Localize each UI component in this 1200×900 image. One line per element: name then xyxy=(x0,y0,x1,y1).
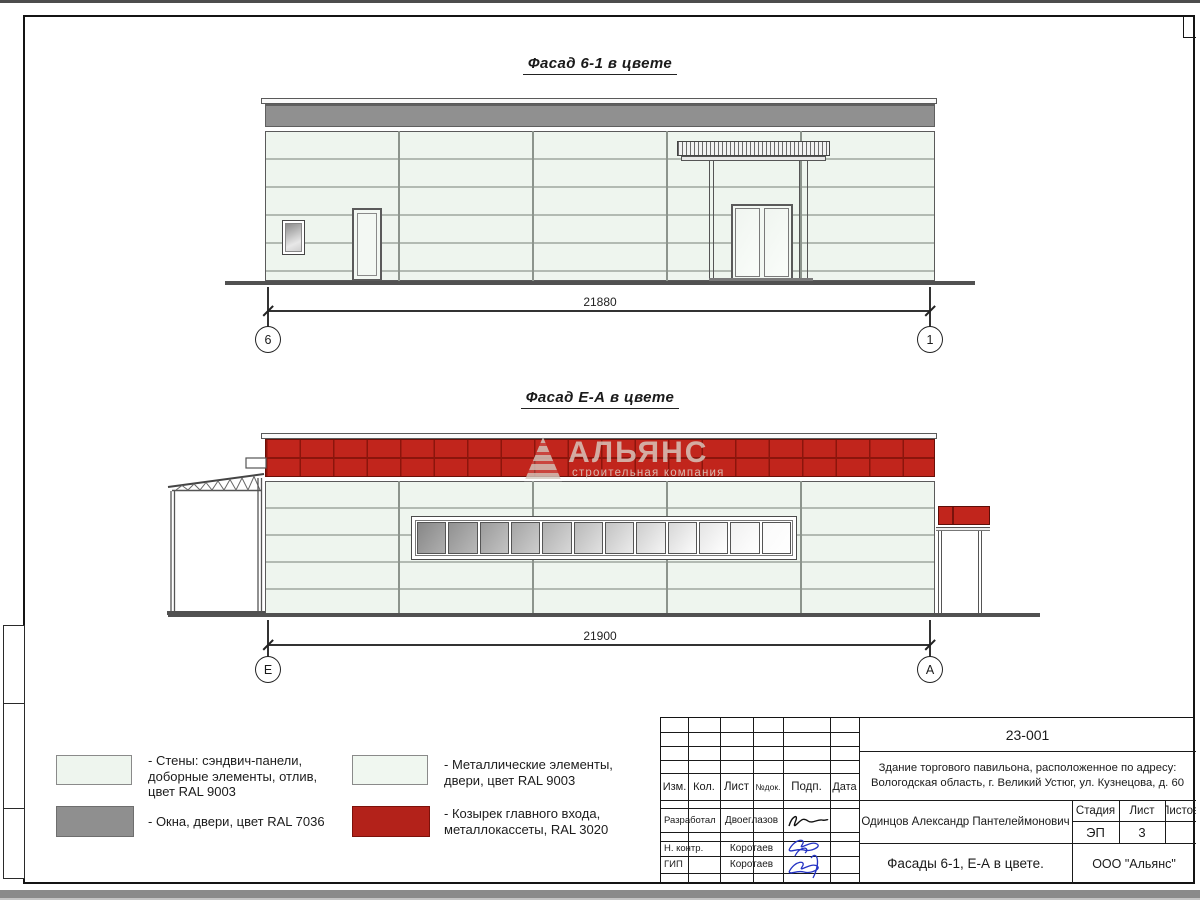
legend-swatch-wall xyxy=(56,755,132,785)
window-pane xyxy=(699,522,728,554)
stage-value: ЭП xyxy=(1072,821,1119,843)
dimension-line xyxy=(267,644,931,646)
side-canopy-post xyxy=(978,531,982,613)
axis-label: 6 xyxy=(265,333,272,347)
legend-swatch-canopy xyxy=(352,806,430,837)
window-glass xyxy=(285,223,302,252)
legend-label-canopy: - Козырек главного входа, металлокассеты… xyxy=(444,806,664,837)
window-pane xyxy=(480,522,509,554)
top-right-corner-box xyxy=(1183,17,1196,38)
col-header-list: Лист xyxy=(720,773,753,800)
extension-line xyxy=(267,287,269,327)
left-margin-cell xyxy=(3,808,25,879)
entrance-canopy-hatched xyxy=(677,141,830,156)
project-address: Здание торгового павильона, расположенно… xyxy=(859,751,1196,800)
grey-fascia-band xyxy=(265,104,935,127)
window-pane xyxy=(605,522,634,554)
door-leaf xyxy=(735,208,760,277)
doc-number: 23-001 xyxy=(859,718,1196,751)
panel-joint xyxy=(398,131,400,281)
chief-architect: Одинцов Александр Пантелеймонович xyxy=(859,800,1072,843)
panel-joint xyxy=(398,481,400,616)
facade-6-1-title: Фасад 6-1 в цвете xyxy=(450,55,750,75)
small-window xyxy=(282,220,305,255)
facade-6-1-drawing xyxy=(265,98,935,285)
ground-line xyxy=(225,281,975,285)
side-entrance-red-canopy xyxy=(938,506,990,525)
dimension-value: 21900 xyxy=(540,629,660,643)
window-pane xyxy=(636,522,665,554)
door-leaf xyxy=(764,208,789,277)
title-block: Изм. Кол. Лист №док. Подп. Дата Разработ… xyxy=(660,717,1195,883)
window-pane xyxy=(574,522,603,554)
drawing-title: Фасады 6-1, Е-А в цвете. xyxy=(859,843,1072,884)
row-gip-label: ГИП xyxy=(661,856,720,873)
axis-label: А xyxy=(926,663,934,677)
facade-EA-title: Фасад Е-А в цвете xyxy=(450,389,750,409)
side-canopy-truss xyxy=(160,450,270,620)
col-header-izm: Изм. xyxy=(661,773,688,800)
panel-joint xyxy=(666,131,668,281)
window-pane xyxy=(511,522,540,554)
window-pane xyxy=(762,522,791,554)
legend-swatch-metal xyxy=(352,755,428,785)
signature-black xyxy=(783,809,830,832)
extension-line xyxy=(267,620,269,659)
facade-6-1-title-text: Фасад 6-1 в цвете xyxy=(523,55,677,75)
axis-bubble-E: Е xyxy=(255,656,281,683)
signature-blue xyxy=(781,836,831,882)
service-door xyxy=(352,208,382,281)
row-ncontr-name: Коротаев xyxy=(720,841,783,856)
main-entrance-double-door xyxy=(731,204,793,281)
row-developed-label: Разработал xyxy=(661,808,720,832)
side-canopy-post xyxy=(938,531,942,613)
window-pane xyxy=(542,522,571,554)
extension-line xyxy=(929,287,931,327)
stage-header: Стадия xyxy=(1072,800,1119,821)
window-pane xyxy=(448,522,477,554)
col-header-podp: Подп. xyxy=(783,773,830,800)
panel-joint xyxy=(800,481,802,616)
wall-bracket xyxy=(246,458,266,468)
row-ncontr-label: Н. контр. xyxy=(661,841,720,856)
dimension-line xyxy=(267,310,931,312)
axis-label: 1 xyxy=(927,333,934,347)
left-margin-cell xyxy=(3,625,25,705)
axis-bubble-6: 6 xyxy=(255,326,281,353)
dimension-value: 21880 xyxy=(540,295,660,309)
strip-window-frame xyxy=(415,520,793,556)
canopy-post-left xyxy=(709,161,714,281)
row-developed-name: Двоеглазов xyxy=(720,808,783,832)
col-header-data: Дата xyxy=(830,773,859,800)
sheet-value: 3 xyxy=(1119,821,1165,843)
sheet-header: Лист xyxy=(1119,800,1165,821)
window-pane xyxy=(668,522,697,554)
row-gip-name: Коротаев xyxy=(720,856,783,873)
extension-line xyxy=(929,620,931,659)
watermark-company-name: АЛЬЯНС xyxy=(568,436,708,470)
screen-bottom-edge xyxy=(0,890,1200,898)
strip-window xyxy=(411,516,797,560)
project-address-line2: Вологодская область, г. Великий Устюг, у… xyxy=(871,776,1184,791)
legend-label-metal: - Металлические элементы, двери, цвет RA… xyxy=(444,757,664,788)
sheets-header: Листов xyxy=(1165,800,1196,821)
canopy-post-right xyxy=(799,161,808,281)
axis-label: Е xyxy=(264,663,272,677)
legend-label-wall: - Стены: сэндвич-панели, доборные элемен… xyxy=(148,753,368,800)
left-margin-cell xyxy=(3,703,25,810)
axis-bubble-A: А xyxy=(917,656,943,683)
axis-bubble-1: 1 xyxy=(917,326,943,353)
door-panel xyxy=(357,213,377,276)
canopy-panel-joint xyxy=(952,507,954,524)
facade-EA-title-text: Фасад Е-А в цвете xyxy=(521,389,679,409)
ground-line xyxy=(168,613,1040,617)
panel-joint xyxy=(532,131,534,281)
watermark-tagline: строительная компания xyxy=(572,467,725,479)
col-header-kol: Кол. xyxy=(688,773,720,800)
window-pane xyxy=(730,522,759,554)
drawing-sheet: { "facade1": { "title": "Фасад 6-1 в цве… xyxy=(0,0,1200,900)
company-name: ООО "Альянс" xyxy=(1072,843,1196,884)
col-header-ndok: №док. xyxy=(753,773,783,800)
window-pane xyxy=(417,522,446,554)
screen-top-edge xyxy=(0,0,1200,3)
legend-swatch-windows xyxy=(56,806,134,837)
project-address-line1: Здание торгового павильона, расположенно… xyxy=(879,761,1177,776)
